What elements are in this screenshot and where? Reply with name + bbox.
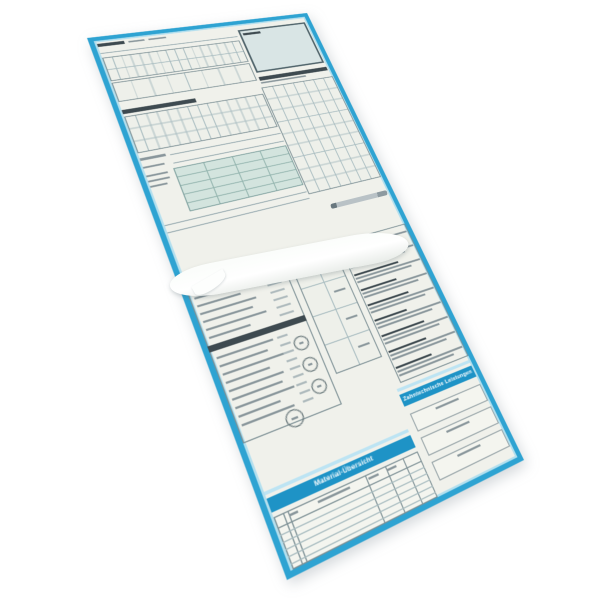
treatment-grid [124, 94, 278, 154]
field-label-bar [143, 163, 165, 169]
form-subtitle-bar [148, 37, 166, 41]
icon-circle-3-glyph [316, 384, 322, 388]
seal-stamp-circle-glyph [291, 416, 298, 420]
icon-circle-1-glyph [299, 341, 305, 345]
icon-circle-2-glyph [307, 363, 313, 367]
product-photo: Zahntechnische LeistungenMaterial-Übersi… [0, 0, 601, 601]
form-subtitle-bar [128, 39, 145, 42]
summary-table [173, 145, 303, 211]
side-label-bars [150, 182, 168, 187]
form-photo-wrapper: Zahntechnische LeistungenMaterial-Übersi… [0, 0, 601, 601]
form-sheet: Zahntechnische LeistungenMaterial-Übersi… [87, 13, 524, 580]
form-title-bar [97, 41, 125, 47]
field-label-bar [140, 154, 167, 162]
